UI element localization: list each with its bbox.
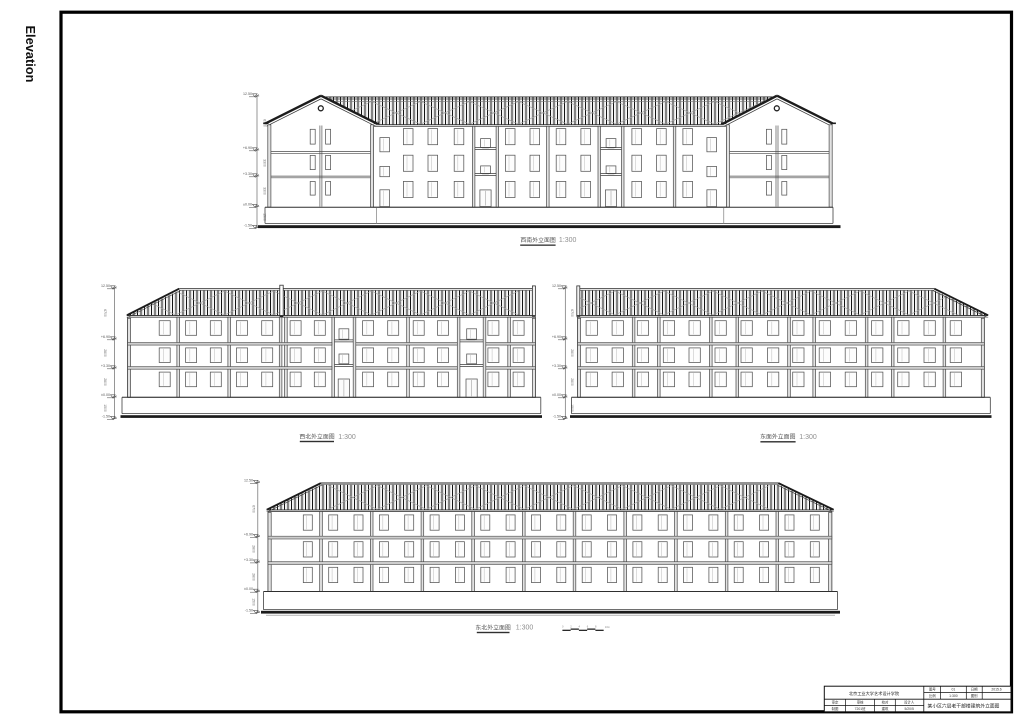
svg-text:6700: 6700: [252, 505, 256, 513]
svg-text:12.50: 12.50: [243, 92, 252, 96]
svg-text:北京工业大学艺术设计学院: 北京工业大学艺术设计学院: [849, 690, 900, 697]
svg-text:设计人: 设计人: [904, 700, 915, 705]
svg-text:2800: 2800: [103, 349, 107, 357]
svg-text:西南外立面图: 西南外立面图: [520, 236, 555, 244]
svg-text:-1.50: -1.50: [102, 414, 110, 418]
svg-text:6700: 6700: [570, 309, 574, 317]
svg-text:12.50: 12.50: [552, 284, 561, 288]
svg-text:±0.00: ±0.00: [552, 393, 561, 397]
svg-text:12.50: 12.50: [244, 478, 253, 482]
svg-text:审核: 审核: [857, 700, 864, 705]
svg-text:-1.50: -1.50: [245, 608, 253, 612]
svg-text:校对: 校对: [882, 700, 889, 705]
svg-text:+3.30: +3.30: [243, 172, 252, 176]
svg-text:图号: 图号: [929, 687, 936, 692]
svg-text:某小区六层老干部楼建筑外立面图: 某小区六层老干部楼建筑外立面图: [928, 702, 1000, 709]
svg-text:5/20/5: 5/20/5: [904, 707, 914, 711]
svg-text:建筑: 建筑: [882, 706, 889, 711]
svg-text:1500: 1500: [252, 598, 256, 606]
svg-text:2800: 2800: [103, 378, 107, 386]
svg-text:01: 01: [952, 688, 956, 692]
svg-text:东北外立面图: 东北外立面图: [475, 623, 510, 631]
svg-text:比例: 比例: [929, 693, 936, 698]
svg-text:1500: 1500: [570, 404, 574, 412]
svg-text:1500: 1500: [263, 213, 267, 221]
svg-text:+6.90: +6.90: [244, 532, 253, 536]
svg-text:±0.00: ±0.00: [244, 587, 253, 591]
svg-text:3300: 3300: [263, 159, 267, 167]
svg-text:东面外立面图: 东面外立面图: [760, 433, 795, 441]
svg-text:7201班: 7201班: [855, 706, 867, 711]
svg-text:1:300: 1:300: [516, 625, 534, 632]
svg-text:6700: 6700: [103, 309, 107, 317]
svg-text:审定: 审定: [832, 700, 839, 705]
svg-text:±0.00: ±0.00: [101, 393, 110, 397]
svg-text:12.50: 12.50: [101, 284, 110, 288]
svg-text:2800: 2800: [570, 378, 574, 386]
svg-text:图别: 图别: [971, 693, 978, 698]
svg-text:1:300: 1:300: [799, 434, 817, 441]
svg-text:2800: 2800: [252, 573, 256, 581]
svg-text:3300: 3300: [263, 187, 267, 195]
svg-text:-1.50: -1.50: [244, 223, 252, 227]
svg-text:2015.6: 2015.6: [991, 688, 1001, 692]
svg-text:+6.90: +6.90: [552, 335, 561, 339]
svg-text:1500: 1500: [103, 404, 107, 412]
svg-text:2800: 2800: [570, 349, 574, 357]
svg-text:+3.30: +3.30: [552, 364, 561, 368]
svg-text:+3.30: +3.30: [101, 364, 110, 368]
svg-text:2800: 2800: [252, 545, 256, 553]
svg-text:1:300: 1:300: [949, 694, 958, 698]
svg-text:制图: 制图: [832, 706, 839, 711]
svg-text:1:300: 1:300: [559, 237, 577, 244]
svg-text:1:300: 1:300: [338, 434, 356, 441]
svg-text:Elevation: Elevation: [23, 26, 38, 83]
svg-text:西北外立面图: 西北外立面图: [299, 433, 334, 441]
svg-text:10m: 10m: [605, 625, 610, 629]
svg-text:+6.90: +6.90: [101, 335, 110, 339]
svg-text:-1.50: -1.50: [553, 414, 561, 418]
svg-text:±0.00: ±0.00: [243, 202, 252, 206]
svg-text:+3.30: +3.30: [244, 558, 253, 562]
svg-text:+6.90: +6.90: [243, 146, 252, 150]
svg-text:日期: 日期: [971, 687, 978, 692]
